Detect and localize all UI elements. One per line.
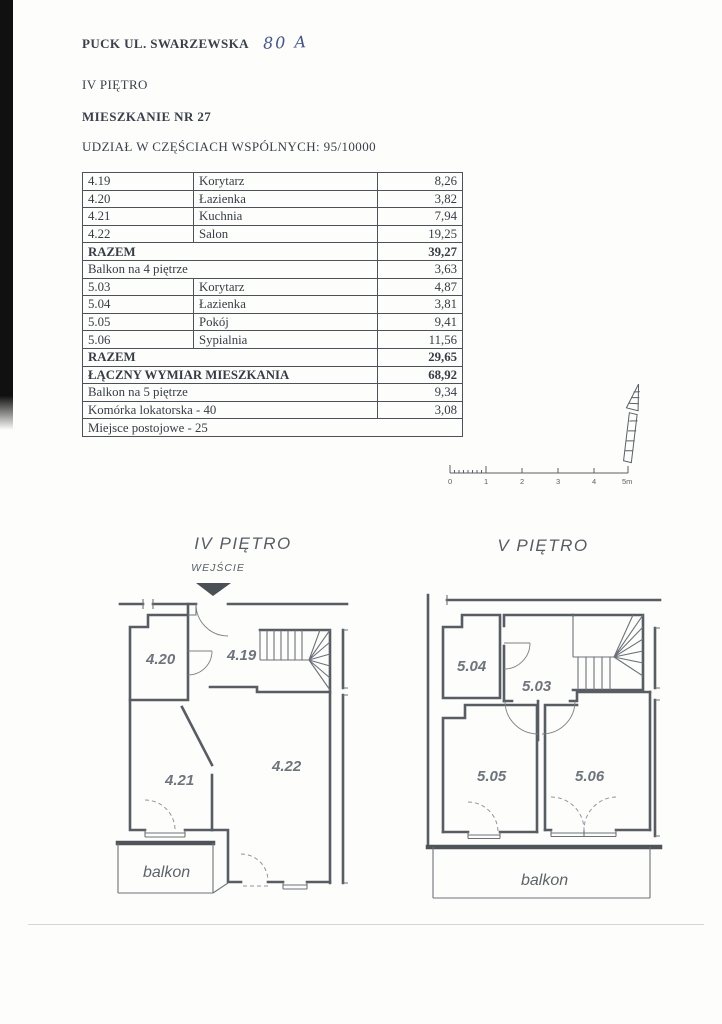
summary-area: 39,27 <box>378 243 463 261</box>
row-area: 3,63 <box>378 260 463 278</box>
plan-v-windows <box>468 830 616 839</box>
room-label: 4.19 <box>226 647 257 664</box>
room-area: 11,56 <box>378 331 463 349</box>
table-row-summary: RAZEM29,65 <box>83 348 463 366</box>
address-handwritten: 80 A <box>263 32 309 53</box>
summary-area: 29,65 <box>378 348 463 366</box>
table-row: 4.19Korytarz8,26 <box>83 173 463 191</box>
balcony-label: balkon <box>143 864 190 881</box>
room-name: Kuchnia <box>194 208 378 226</box>
room-name: Korytarz <box>194 173 378 191</box>
row-label: Komórka lokatorska - 40 <box>83 401 378 419</box>
scale-tick-label: 0 <box>448 477 452 486</box>
room-area: 3,81 <box>378 296 463 314</box>
room-no: 4.22 <box>83 225 194 243</box>
plan-iv-stairs <box>260 630 330 690</box>
scale-tick-label: 1 <box>484 477 488 486</box>
plan-iv-walls <box>120 599 348 883</box>
room-area: 9,41 <box>378 313 463 331</box>
scale-tick-label: 4 <box>592 477 596 486</box>
room-label: 5.06 <box>575 768 605 785</box>
entrance-arrow-icon <box>196 583 231 596</box>
room-name: Salon <box>194 225 378 243</box>
scanned-document-page: PUCK UL. SWARZEWSKA 80 A IV PIĘTRO MIESZ… <box>0 0 722 1024</box>
scale-tick-label: 2 <box>520 477 524 486</box>
room-no: 4.21 <box>83 208 194 226</box>
floor-plan-iv: 4.20 4.19 4.21 4.22 balkon <box>110 580 360 902</box>
area-table: 4.19Korytarz8,26 4.20Łazienka3,82 4.21Ku… <box>82 172 463 437</box>
room-label: 5.05 <box>477 768 507 785</box>
plan-v-stairs <box>573 615 643 690</box>
room-name: Łazienka <box>194 190 378 208</box>
room-area: 7,94 <box>378 208 463 226</box>
scale-bar: 0 1 2 3 4 5m <box>445 460 645 492</box>
table-row: Komórka lokatorska - 403,08 <box>83 401 463 419</box>
room-no: 5.05 <box>83 313 194 331</box>
room-label: 4.20 <box>145 651 176 668</box>
table-row-total: ŁĄCZNY WYMIAR MIESZKANIA68,92 <box>83 366 463 384</box>
room-name: Łazienka <box>194 296 378 314</box>
room-name: Pokój <box>194 313 378 331</box>
room-area: 3,82 <box>378 190 463 208</box>
scan-line-artifact <box>28 924 704 925</box>
north-arrow-icon <box>608 382 658 470</box>
room-name: Korytarz <box>194 278 378 296</box>
room-no: 4.20 <box>83 190 194 208</box>
summary-label: RAZEM <box>83 348 378 366</box>
room-label: 5.03 <box>522 678 552 695</box>
scale-tick-label: 5m <box>622 477 632 486</box>
room-no: 5.06 <box>83 331 194 349</box>
room-name: Sypialnia <box>194 331 378 349</box>
row-label: Miejsce postojowe - 25 <box>83 419 463 437</box>
table-row: 4.21Kuchnia7,94 <box>83 208 463 226</box>
table-row: 5.06Sypialnia11,56 <box>83 331 463 349</box>
table-row: Balkon na 4 piętrze3,63 <box>83 260 463 278</box>
table-row: 5.05Pokój9,41 <box>83 313 463 331</box>
room-label: 4.22 <box>271 758 302 775</box>
room-no: 5.03 <box>83 278 194 296</box>
table-row: 4.20Łazienka3,82 <box>83 190 463 208</box>
room-label: 5.04 <box>457 658 487 675</box>
entrance-label: WEJŚCIE <box>178 562 258 574</box>
row-label: Balkon na 5 piętrze <box>83 384 378 402</box>
floor-line: IV PIĘTRO <box>82 77 148 93</box>
row-area: 3,08 <box>378 401 463 419</box>
row-area: 9,34 <box>378 384 463 402</box>
room-no: 4.19 <box>83 173 194 191</box>
table-row: 5.04Łazienka3,81 <box>83 296 463 314</box>
total-area: 68,92 <box>378 366 463 384</box>
plan-title-v: V PIĘTRO <box>463 536 623 556</box>
room-area: 8,26 <box>378 173 463 191</box>
total-label: ŁĄCZNY WYMIAR MIESZKANIA <box>83 366 378 384</box>
table-row: 4.22Salon19,25 <box>83 225 463 243</box>
room-no: 5.04 <box>83 296 194 314</box>
apartment-line: MIESZKANIE NR 27 <box>82 109 211 125</box>
share-line: UDZIAŁ W CZĘŚCIACH WSPÓLNYCH: 95/10000 <box>82 139 376 155</box>
table-row: Miejsce postojowe - 25 <box>83 419 463 437</box>
scan-edge-artifact <box>0 0 13 430</box>
scale-tick-label: 3 <box>556 477 560 486</box>
table-row-summary: RAZEM39,27 <box>83 243 463 261</box>
balcony-label: balkon <box>521 872 568 889</box>
room-area: 4,87 <box>378 278 463 296</box>
address-printed: PUCK UL. SWARZEWSKA <box>82 36 249 52</box>
summary-label: RAZEM <box>83 243 378 261</box>
table-row: Balkon na 5 piętrze9,34 <box>83 384 463 402</box>
room-area: 19,25 <box>378 225 463 243</box>
floor-plan-v: 5.04 5.03 5.05 5.06 balkon <box>418 588 668 910</box>
row-label: Balkon na 4 piętrze <box>83 260 378 278</box>
table-row: 5.03Korytarz4,87 <box>83 278 463 296</box>
room-label: 4.21 <box>164 772 194 789</box>
plan-title-iv: IV PIĘTRO <box>158 534 328 554</box>
